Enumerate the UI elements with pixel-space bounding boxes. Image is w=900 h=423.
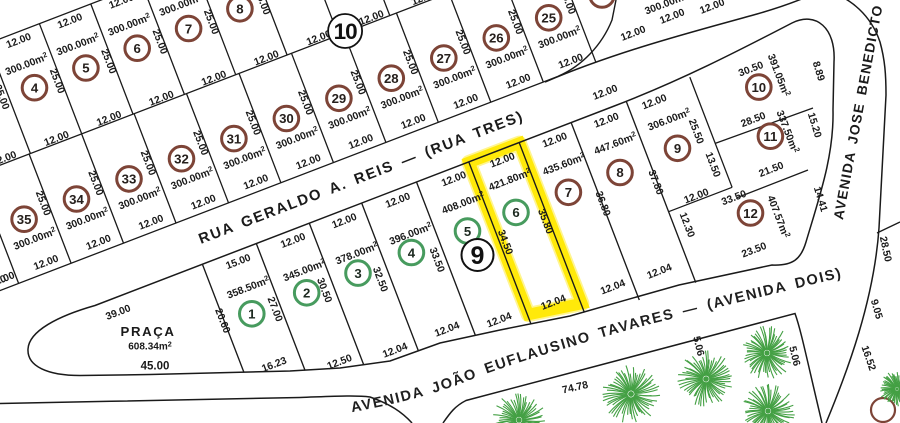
svg-text:7: 7 xyxy=(565,185,572,200)
svg-text:6: 6 xyxy=(134,41,141,56)
svg-text:11: 11 xyxy=(763,129,777,144)
svg-text:34: 34 xyxy=(69,192,84,207)
svg-text:32: 32 xyxy=(174,152,189,167)
svg-text:2: 2 xyxy=(303,286,310,301)
svg-text:6: 6 xyxy=(512,205,519,220)
svg-text:8: 8 xyxy=(236,2,243,17)
svg-text:26: 26 xyxy=(489,31,504,46)
svg-text:30: 30 xyxy=(279,111,294,126)
svg-text:3: 3 xyxy=(354,266,361,281)
svg-text:31: 31 xyxy=(227,131,242,146)
svg-text:PRAÇA: PRAÇA xyxy=(121,324,176,339)
svg-text:1: 1 xyxy=(248,307,255,322)
svg-text:10: 10 xyxy=(751,80,766,95)
svg-text:10: 10 xyxy=(334,19,358,44)
svg-text:4: 4 xyxy=(408,245,416,260)
svg-text:27: 27 xyxy=(436,51,451,66)
svg-text:9: 9 xyxy=(674,141,681,156)
svg-text:12: 12 xyxy=(743,206,758,221)
svg-text:7: 7 xyxy=(185,21,192,36)
svg-text:5: 5 xyxy=(464,224,471,239)
svg-text:4: 4 xyxy=(31,80,39,95)
svg-text:33: 33 xyxy=(122,172,137,187)
svg-text:25: 25 xyxy=(541,11,556,26)
svg-text:45.00: 45.00 xyxy=(141,361,170,373)
svg-text:35: 35 xyxy=(17,212,32,227)
svg-text:9: 9 xyxy=(471,242,485,270)
svg-text:24: 24 xyxy=(595,0,610,3)
svg-text:5: 5 xyxy=(82,61,89,76)
svg-text:8: 8 xyxy=(616,165,623,180)
svg-text:28: 28 xyxy=(384,71,399,86)
svg-text:29: 29 xyxy=(332,91,347,106)
svg-text:608.34m2: 608.34m2 xyxy=(128,339,171,352)
